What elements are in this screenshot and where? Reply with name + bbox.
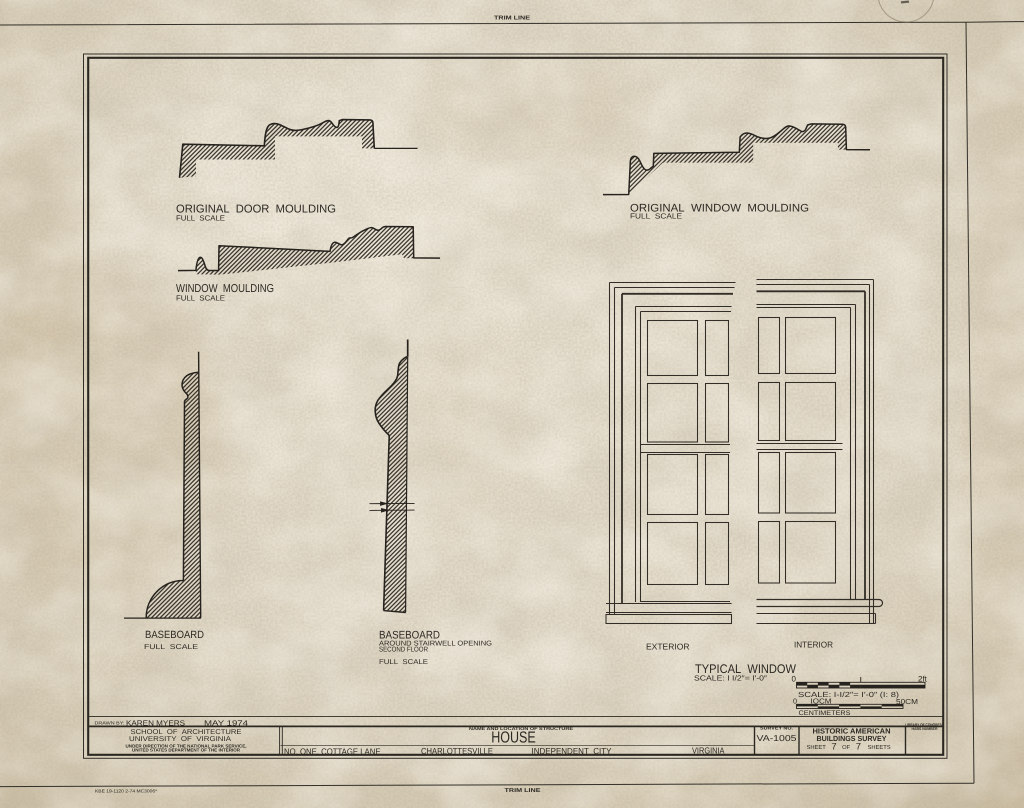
- svg-text:FULL SCALE: FULL SCALE: [176, 214, 225, 223]
- svg-text:VA-1005: VA-1005: [757, 733, 797, 743]
- svg-text:UNIVERSITY OF VIRGINIA: UNIVERSITY OF VIRGINIA: [129, 736, 231, 743]
- svg-text:KAREN MYERS: KAREN MYERS: [126, 718, 185, 727]
- svg-text:KBE 19-1120 2-74 MC3006*: KBE 19-1120 2-74 MC3006*: [95, 789, 157, 794]
- svg-text:NO. ONE. COTTAGE LANE: NO. ONE. COTTAGE LANE: [284, 746, 381, 756]
- svg-text:FULL SCALE: FULL SCALE: [144, 644, 198, 651]
- svg-text:SECOND FLOOR: SECOND FLOOR: [379, 647, 428, 654]
- svg-text:50CM: 50CM: [896, 697, 918, 706]
- svg-text:HOUSE: HOUSE: [491, 729, 536, 746]
- svg-text:VIRGINIA: VIRGINIA: [692, 745, 725, 755]
- svg-text:SURVEY NO.: SURVEY NO.: [760, 726, 793, 731]
- svg-text:INTERIOR: INTERIOR: [794, 640, 833, 650]
- svg-text:FULL SCALE: FULL SCALE: [176, 293, 225, 302]
- svg-text:BUILDINGS SURVEY: BUILDINGS SURVEY: [817, 734, 887, 743]
- svg-text:CHARLOTTESVILLE: CHARLOTTESVILLE: [421, 746, 493, 756]
- svg-text:SCALE: I I/2″= I′-0″: SCALE: I I/2″= I′-0″: [694, 674, 767, 683]
- svg-text:INDEPENDENT CITY: INDEPENDENT CITY: [532, 746, 612, 756]
- svg-text:TRIM LINE: TRIM LINE: [494, 16, 530, 22]
- svg-text:DRAWN BY:: DRAWN BY:: [95, 721, 125, 726]
- svg-text:IOCM: IOCM: [811, 696, 832, 705]
- svg-text:FULL SCALE: FULL SCALE: [630, 211, 682, 220]
- svg-text:FULL SCALE: FULL SCALE: [379, 659, 428, 666]
- svg-text:CENTIMETERS: CENTIMETERS: [799, 710, 852, 717]
- svg-text:UNITED STATES DEPARTMENT OF TH: UNITED STATES DEPARTMENT OF THE INTERIOR: [132, 748, 241, 753]
- svg-text:0: 0: [792, 674, 797, 683]
- svg-text:2ft: 2ft: [918, 675, 928, 684]
- svg-text:EXTERIOR: EXTERIOR: [646, 641, 690, 651]
- svg-text:TRIM LINE: TRIM LINE: [505, 788, 541, 794]
- svg-text:0: 0: [793, 697, 797, 706]
- svg-text:MAY 1974: MAY 1974: [204, 718, 248, 727]
- svg-text:HABS NUMBER: HABS NUMBER: [912, 727, 938, 731]
- svg-text:BASEBOARD: BASEBOARD: [145, 629, 204, 641]
